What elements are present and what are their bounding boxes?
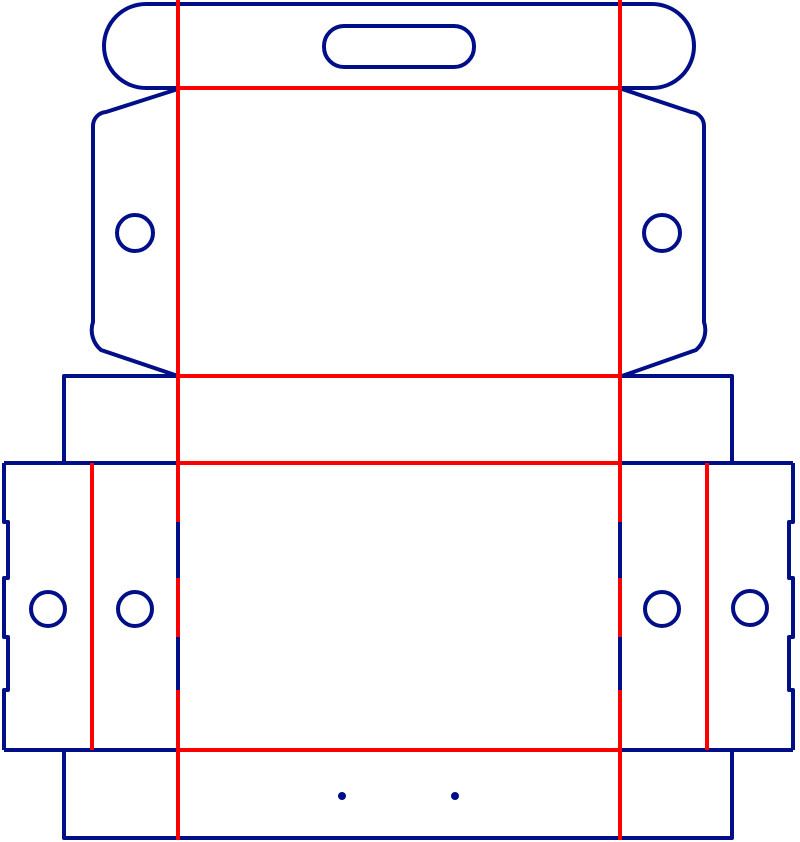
glue-flap-left-hole — [31, 592, 65, 626]
right-wing-hole — [644, 215, 680, 251]
upper-band-left-edge — [64, 376, 178, 461]
lid-flap-outline — [104, 4, 694, 88]
side-panel-right-hole — [645, 592, 679, 626]
main-left-edge-notched — [4, 463, 8, 750]
left-wing-outline — [92, 89, 178, 376]
main-right-edge-notched — [789, 463, 793, 750]
registration-dot-right — [451, 792, 459, 800]
dieline-svg — [0, 0, 800, 842]
lower-band-outline — [64, 750, 732, 838]
glue-flap-right-hole — [733, 591, 767, 625]
right-wing-outline — [622, 89, 705, 376]
upper-band-right-edge — [622, 376, 732, 461]
side-panel-left-hole — [118, 592, 152, 626]
handle-slot — [324, 26, 474, 67]
registration-dot-left — [338, 792, 346, 800]
left-wing-hole — [117, 215, 153, 251]
dieline-canvas — [0, 0, 800, 842]
